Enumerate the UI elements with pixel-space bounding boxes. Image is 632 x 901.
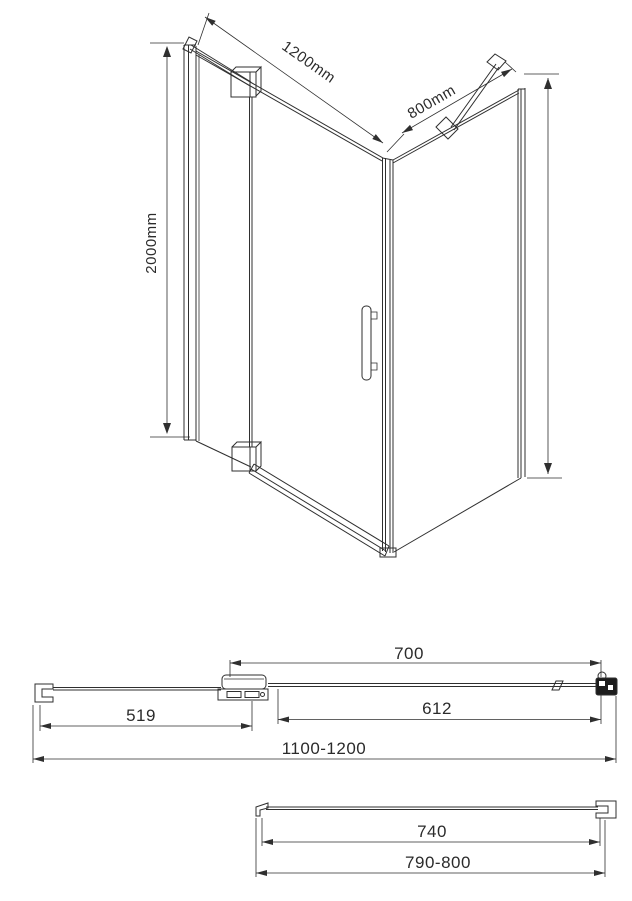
hinge-assembly	[218, 675, 268, 700]
bottom-rail	[249, 464, 389, 556]
isometric-view: 2000mm 1200mm 800mm	[143, 13, 562, 557]
dimension-height-right	[524, 74, 562, 478]
total-width-label: 1100-1200	[282, 739, 367, 758]
dimension-total-width: 1100-1200	[33, 696, 616, 763]
total-depth-label: 790-800	[405, 853, 471, 872]
dimension-519: 519	[40, 701, 252, 731]
side-panel-glass	[393, 88, 525, 552]
depth-dimension-label: 800mm	[405, 82, 459, 123]
door-glass-section	[268, 684, 597, 687]
wall-profile-left	[183, 37, 197, 441]
height-dimension-label: 2000mm	[143, 212, 160, 273]
fixed-segment-label: 519	[126, 706, 156, 725]
width-dimension-label: 1200mm	[279, 38, 339, 87]
wall-bracket-right	[596, 672, 617, 695]
fixed-glass-section	[53, 688, 221, 691]
plan-view-door: 700 519 612 1100-1200	[33, 644, 617, 763]
dimension-700: 700	[230, 644, 601, 677]
opening-width-label: 700	[394, 644, 424, 663]
handle-section	[552, 681, 563, 690]
drawing-canvas: 2000mm 1200mm 800mm	[0, 0, 632, 901]
side-glass-section	[266, 807, 598, 810]
wall-profile-right-plan	[596, 801, 616, 818]
dimension-740: 740	[262, 818, 600, 846]
front-panel-glass	[196, 51, 383, 467]
dimension-width-1200: 1200mm	[198, 13, 383, 143]
hinge-top	[231, 67, 261, 97]
dimension-height-2000: 2000mm	[143, 43, 190, 437]
dimension-depth-800: 800mm	[387, 62, 516, 152]
dimension-612: 612	[278, 689, 601, 724]
hinge-bottom	[232, 442, 261, 471]
door-segment-label: 612	[422, 699, 452, 718]
corner-post	[380, 158, 396, 557]
wall-profile-left-plan	[35, 684, 53, 702]
plan-view-side-panel: 740 790-800	[256, 801, 616, 877]
technical-drawing: 2000mm 1200mm 800mm	[0, 0, 632, 901]
door-handle	[362, 306, 377, 380]
side-glass-width-label: 740	[417, 822, 447, 841]
